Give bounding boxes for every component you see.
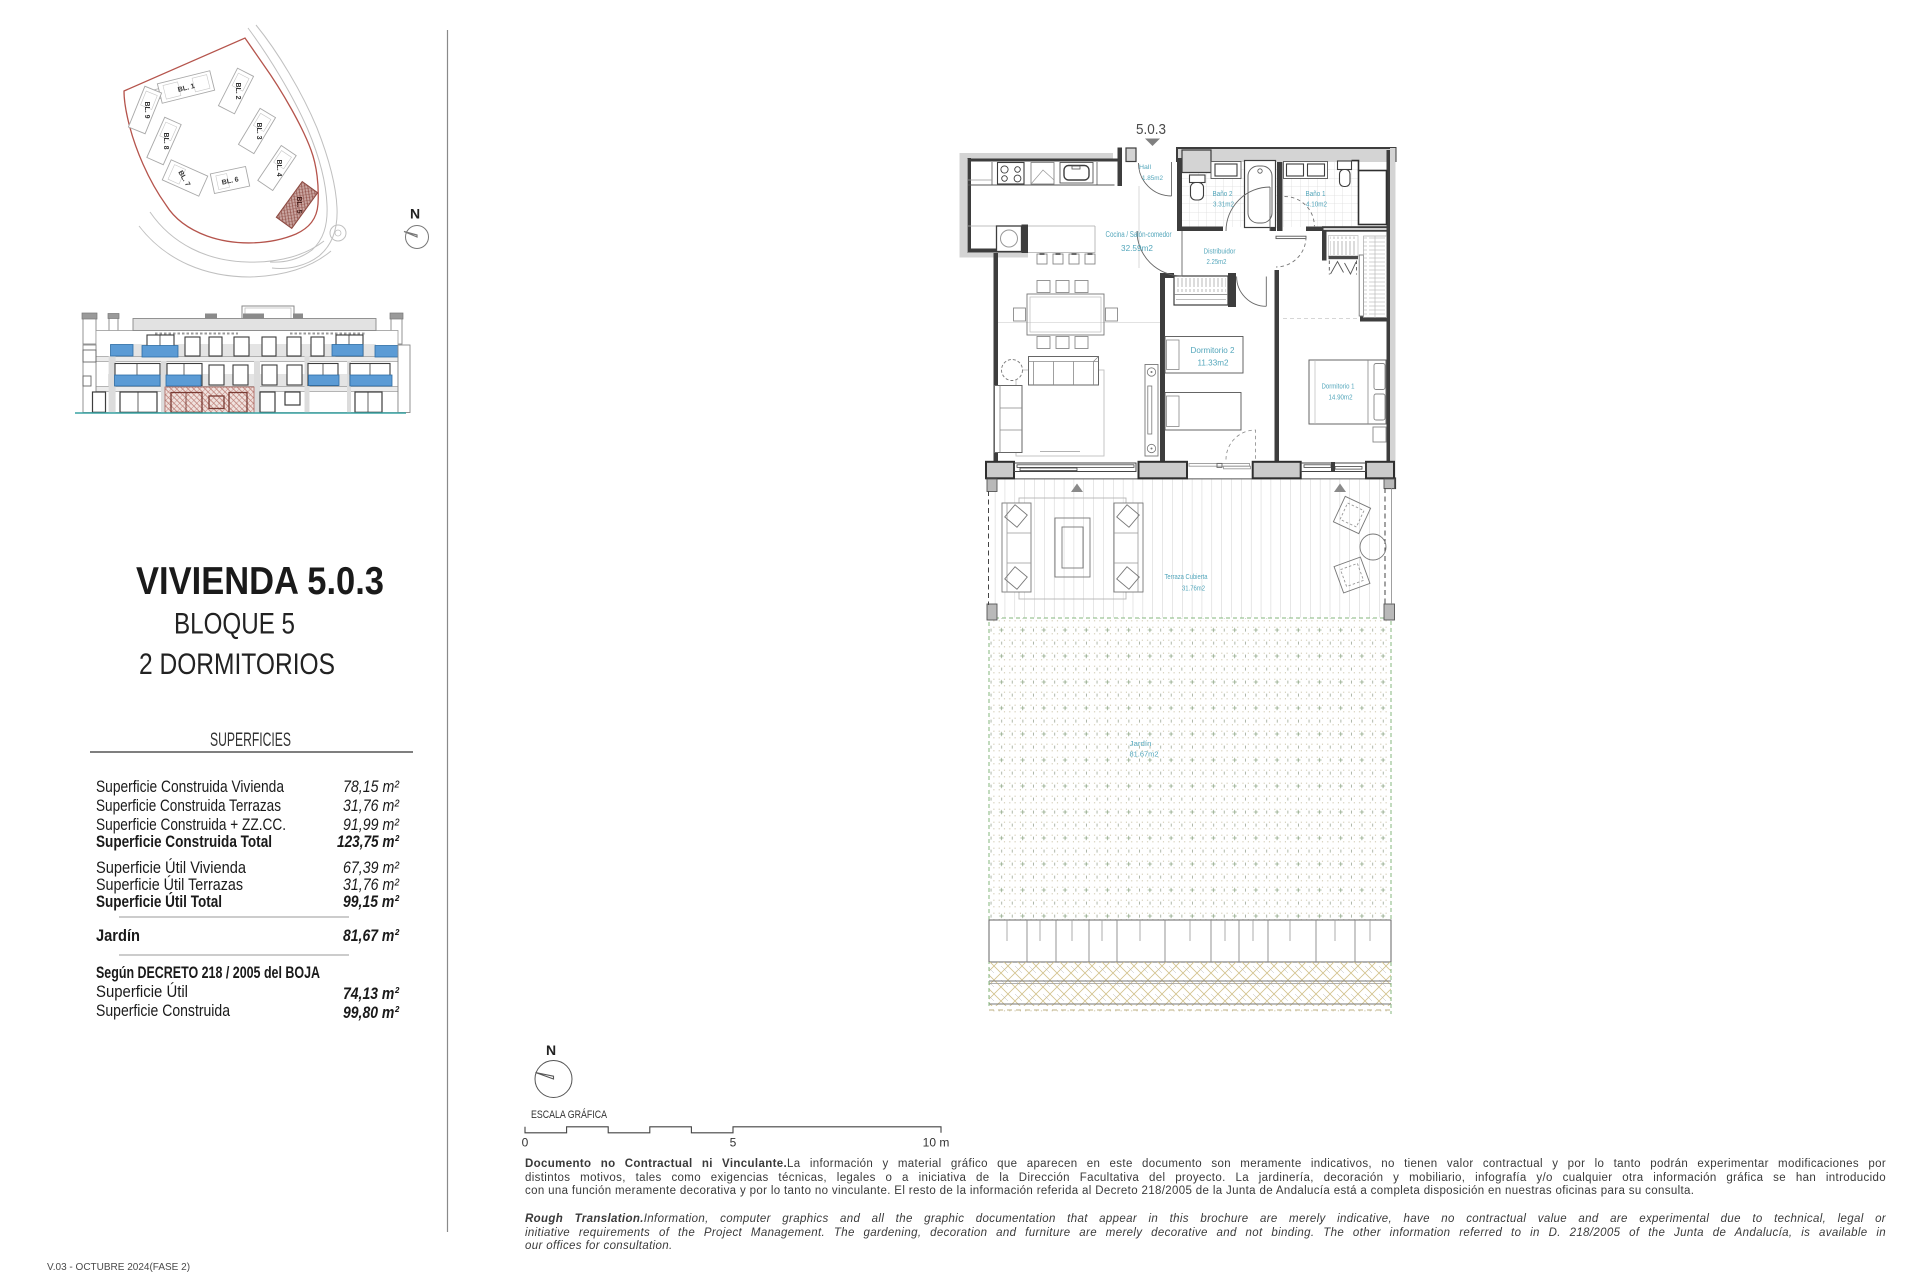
svg-text:BL. 5: BL. 5	[295, 196, 302, 213]
svg-text:0: 0	[522, 1136, 529, 1150]
svg-text:11.33m2: 11.33m2	[1198, 359, 1230, 368]
svg-text:ESCALA GRÁFICA: ESCALA GRÁFICA	[531, 1108, 608, 1121]
svg-text:123,75 m²: 123,75 m²	[337, 833, 399, 851]
svg-text:31,76 m²: 31,76 m²	[343, 797, 399, 815]
svg-text:Según DECRETO 218 / 2005 del B: Según DECRETO 218 / 2005 del BOJA	[96, 964, 320, 982]
svg-text:Superficie Construida Terrazas: Superficie Construida Terrazas	[96, 797, 281, 815]
svg-text:Superficie Útil Vivienda: Superficie Útil Vivienda	[96, 858, 247, 877]
svg-text:Baño 2: Baño 2	[1213, 191, 1233, 198]
svg-text:Baño 1: Baño 1	[1306, 191, 1326, 198]
svg-text:Superficie Útil Total: Superficie Útil Total	[96, 892, 222, 911]
svg-text:99,15 m²: 99,15 m²	[343, 893, 399, 911]
svg-text:67,39 m²: 67,39 m²	[343, 859, 399, 877]
svg-text:5.0.3: 5.0.3	[1136, 122, 1166, 138]
svg-text:2 DORMITORIOS: 2 DORMITORIOS	[139, 648, 335, 681]
svg-text:1.85m2: 1.85m2	[1142, 175, 1163, 182]
svg-text:Dormitorio 2: Dormitorio 2	[1191, 346, 1236, 355]
svg-text:74,13 m²: 74,13 m²	[343, 985, 399, 1003]
svg-text:Dormitorio 1: Dormitorio 1	[1322, 384, 1355, 391]
svg-text:Superficie Construida Vivienda: Superficie Construida Vivienda	[96, 778, 285, 796]
svg-text:N: N	[410, 206, 420, 222]
svg-text:31.76m2: 31.76m2	[1182, 584, 1205, 593]
svg-text:14.90m2: 14.90m2	[1329, 395, 1353, 402]
svg-text:N: N	[546, 1042, 556, 1058]
svg-text:Superficie Construida + ZZ.CC.: Superficie Construida + ZZ.CC.	[96, 816, 286, 834]
svg-text:Jardín: Jardín	[96, 927, 140, 945]
svg-text:4.10m2: 4.10m2	[1306, 202, 1327, 209]
svg-text:BL. 2: BL. 2	[234, 82, 241, 99]
svg-text:78,15 m²: 78,15 m²	[343, 778, 399, 796]
svg-text:Cocina / Salón-comedor: Cocina / Salón-comedor	[1106, 230, 1172, 239]
svg-text:Superficie Útil: Superficie Útil	[96, 982, 188, 1001]
svg-text:SUPERFICIES: SUPERFICIES	[210, 730, 291, 751]
svg-text:BL. 4: BL. 4	[275, 159, 282, 176]
svg-text:BLOQUE 5: BLOQUE 5	[174, 608, 295, 641]
svg-text:BL. 9: BL. 9	[143, 101, 150, 118]
svg-text:91,99 m²: 91,99 m²	[343, 816, 399, 834]
svg-text:31,76 m²: 31,76 m²	[343, 876, 399, 894]
svg-text:Terraza Cubierta: Terraza Cubierta	[1165, 572, 1209, 581]
svg-text:Superficie Construida: Superficie Construida	[96, 1002, 231, 1020]
svg-text:10 m: 10 m	[923, 1136, 950, 1150]
svg-text:BL. 3: BL. 3	[255, 122, 262, 139]
svg-text:32.59m2: 32.59m2	[1121, 244, 1154, 253]
svg-text:BL. 8: BL. 8	[162, 132, 169, 149]
svg-text:3.31m2: 3.31m2	[1213, 202, 1234, 209]
svg-text:Superficie Útil Terrazas: Superficie Útil Terrazas	[96, 875, 243, 894]
svg-text:81.67m2: 81.67m2	[1130, 750, 1159, 759]
svg-text:Distribuidor: Distribuidor	[1204, 247, 1236, 256]
svg-text:81,67 m²: 81,67 m²	[343, 927, 399, 945]
svg-text:2.25m2: 2.25m2	[1207, 257, 1227, 266]
svg-text:Superficie Construida Total: Superficie Construida Total	[96, 833, 272, 851]
svg-text:Hall: Hall	[1139, 164, 1152, 171]
svg-text:Jardín: Jardín	[1130, 739, 1152, 748]
svg-text:99,80 m²: 99,80 m²	[343, 1004, 399, 1022]
svg-text:5: 5	[730, 1136, 737, 1150]
svg-text:VIVIENDA 5.0.3: VIVIENDA 5.0.3	[136, 560, 384, 603]
